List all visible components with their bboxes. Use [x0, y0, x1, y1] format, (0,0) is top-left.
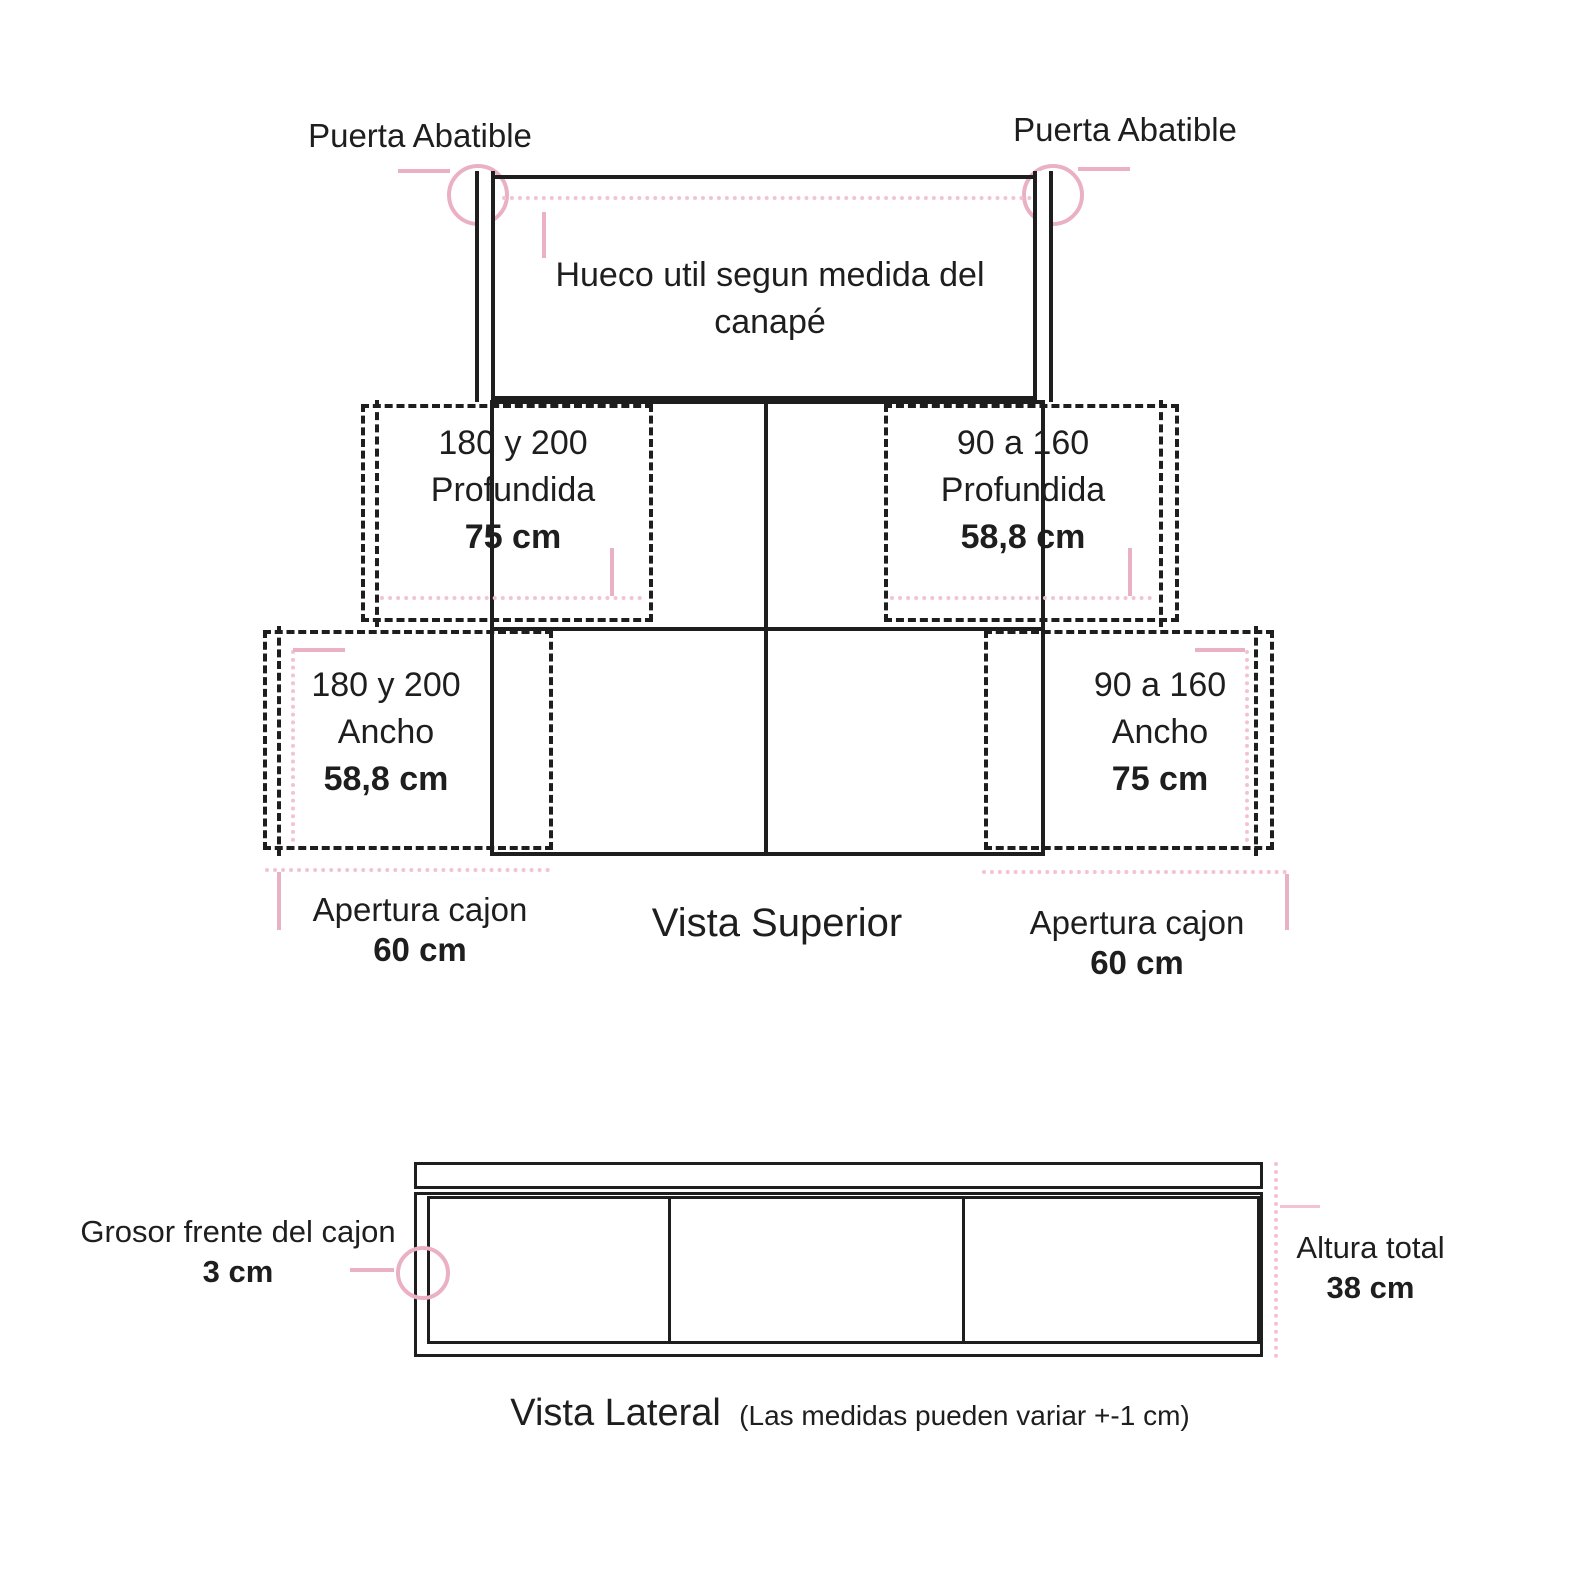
altura-label: Altura total 38 cm — [1288, 1228, 1453, 1308]
apertura-right-label: Apertura cajon 60 cm — [1007, 903, 1267, 983]
apertura-right-tick — [1285, 874, 1289, 930]
drawer-low-right-label: 90 a 160 Ancho 75 cm — [1040, 662, 1280, 803]
drawer-mid-right-value: 58,8 cm — [900, 514, 1146, 561]
side-view-inner-panel — [427, 1196, 1260, 1344]
drawer-low-right-range: 90 a 160 — [1040, 662, 1280, 709]
hueco-width-dotted-line — [502, 196, 1032, 200]
drawer-low-left-tick — [293, 648, 345, 652]
apertura-left-tick — [277, 872, 281, 930]
drawer-low-left-value: 58,8 cm — [266, 756, 506, 803]
drawer-mid-right-range: 90 a 160 — [900, 420, 1146, 467]
door-bar-top-right — [1033, 171, 1053, 402]
drawer-mid-right-front — [1159, 400, 1163, 627]
side-view-title-text: Vista Lateral — [510, 1392, 721, 1434]
top-view-title: Vista Superior — [622, 903, 932, 943]
hinge-leader-right — [1078, 167, 1130, 171]
drawer-low-right-value: 75 cm — [1040, 756, 1280, 803]
canape-middle-divider — [490, 627, 1045, 631]
grosor-label: Grosor frente del cajon 3 cm — [78, 1212, 398, 1292]
apertura-right-value: 60 cm — [1007, 943, 1267, 983]
drawer-mid-right-dotted — [890, 596, 1152, 600]
side-view-lid — [414, 1162, 1263, 1189]
drawer-mid-right-label: 90 a 160 Profundida 58,8 cm — [900, 420, 1146, 561]
puerta-abatible-right-label: Puerta Abatible — [985, 110, 1265, 150]
drawer-mid-left-dotted — [380, 596, 642, 600]
drawer-low-left-range: 180 y 200 — [266, 662, 506, 709]
drawer-mid-left-range: 180 y 200 — [390, 420, 636, 467]
grosor-value: 3 cm — [78, 1252, 398, 1292]
apertura-left-dotted-line — [265, 868, 550, 872]
side-view-note: (Las medidas pueden variar +-1 cm) — [739, 1400, 1190, 1431]
apertura-right-dotted-line — [982, 870, 1287, 874]
drawer-mid-left-value: 75 cm — [390, 514, 636, 561]
hueco-label-line1: Hueco util segun medida del — [520, 252, 1020, 299]
side-view-divider-1 — [668, 1199, 671, 1341]
drawer-low-left-dim: Ancho — [266, 709, 506, 756]
apertura-left-label: Apertura cajon 60 cm — [290, 890, 550, 970]
door-bar-top-left — [475, 171, 495, 402]
drawer-low-right-tick — [1195, 648, 1245, 652]
apertura-right-text: Apertura cajon — [1007, 903, 1267, 943]
drawer-low-left-label: 180 y 200 Ancho 58,8 cm — [266, 662, 506, 803]
drawer-low-right-dim: Ancho — [1040, 709, 1280, 756]
furniture-dimension-diagram: Puerta Abatible Puerta Abatible Hueco ut… — [0, 0, 1575, 1575]
hueco-label-line2: canapé — [520, 299, 1020, 346]
hueco-label: Hueco util segun medida del canapé — [520, 252, 1020, 346]
drawer-mid-left-dim: Profundida — [390, 467, 636, 514]
altura-tick — [1280, 1205, 1320, 1208]
grosor-circle — [396, 1246, 450, 1300]
altura-text: Altura total — [1288, 1228, 1453, 1268]
grosor-text: Grosor frente del cajon — [78, 1212, 398, 1252]
puerta-abatible-left-label: Puerta Abatible — [280, 116, 560, 156]
drawer-mid-right-dim: Profundida — [900, 467, 1146, 514]
side-view-title: Vista Lateral (Las medidas pueden variar… — [440, 1392, 1260, 1435]
altura-dotted-line — [1274, 1162, 1278, 1358]
apertura-left-value: 60 cm — [290, 930, 550, 970]
hinge-leader-left — [398, 169, 450, 173]
drawer-mid-left-front — [375, 400, 379, 627]
drawer-mid-left-label: 180 y 200 Profundida 75 cm — [390, 420, 636, 561]
altura-value: 38 cm — [1288, 1268, 1453, 1308]
side-view-divider-2 — [962, 1199, 965, 1341]
apertura-left-text: Apertura cajon — [290, 890, 550, 930]
